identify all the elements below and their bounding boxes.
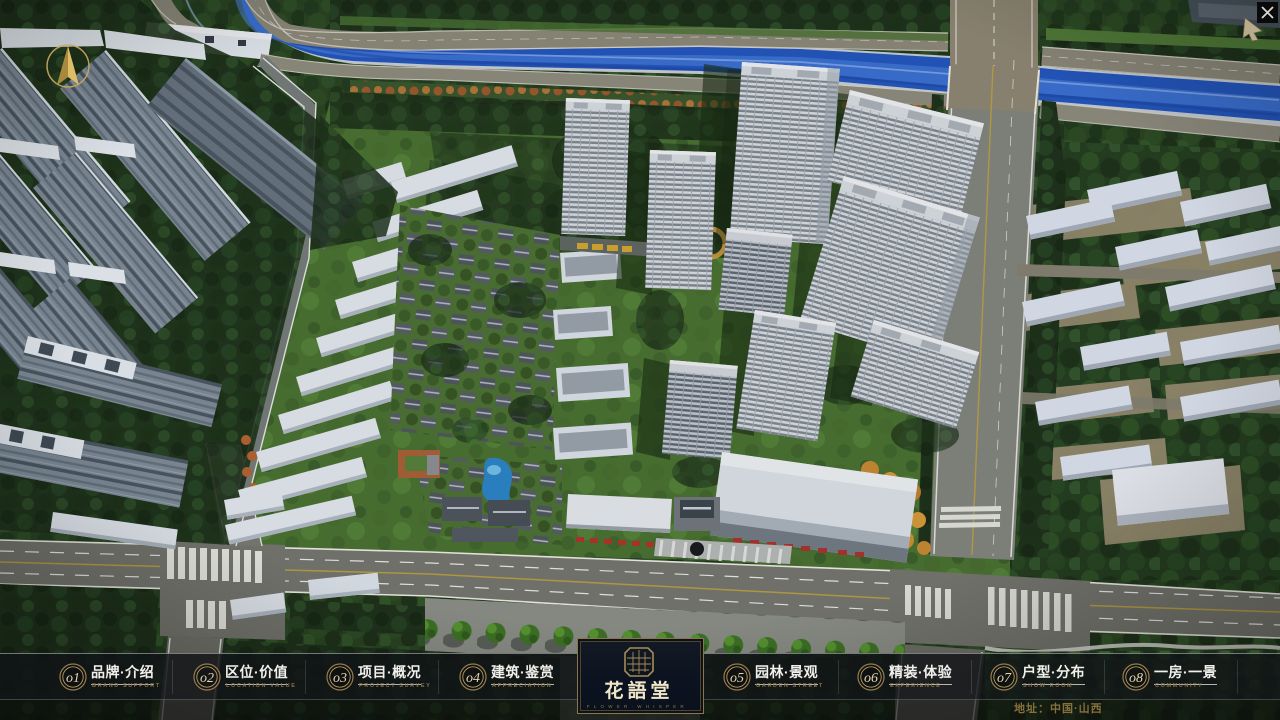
- svg-text:花語堂: 花語堂: [604, 679, 673, 702]
- svg-text:F L O W E R · W H I S P E R: F L O W E R · W H I S P E R: [587, 704, 685, 709]
